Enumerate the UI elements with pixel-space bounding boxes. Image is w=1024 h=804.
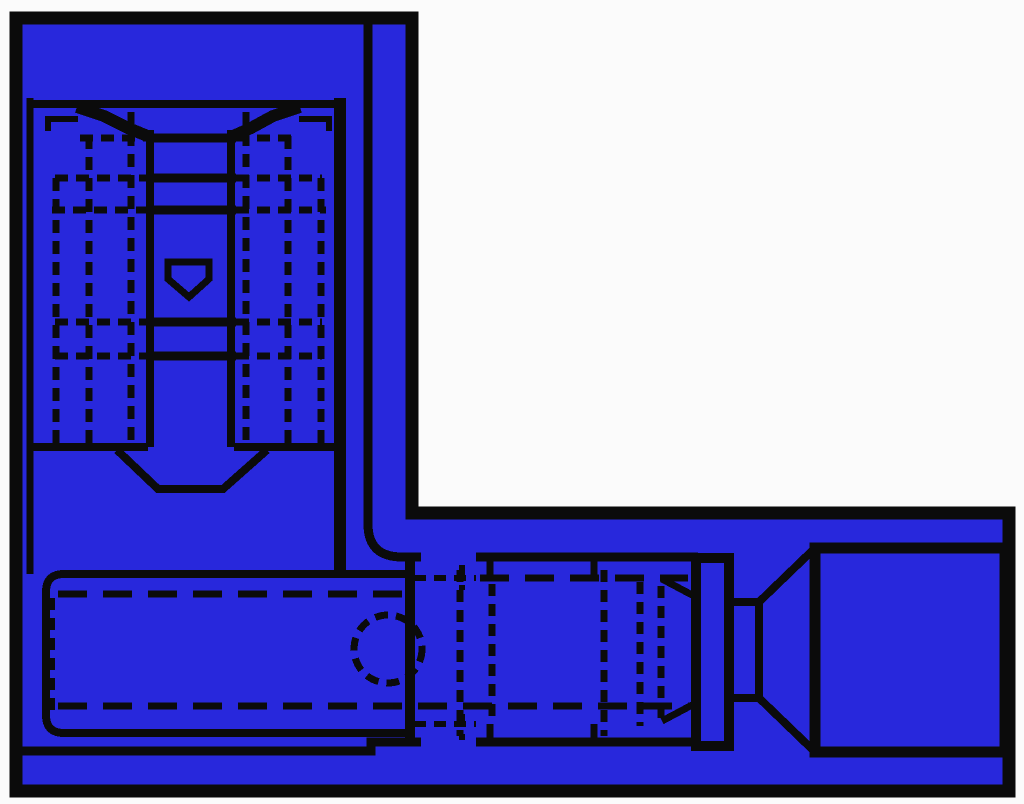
terminal-diagram	[0, 0, 1024, 804]
drawing-canvas	[0, 0, 1024, 804]
